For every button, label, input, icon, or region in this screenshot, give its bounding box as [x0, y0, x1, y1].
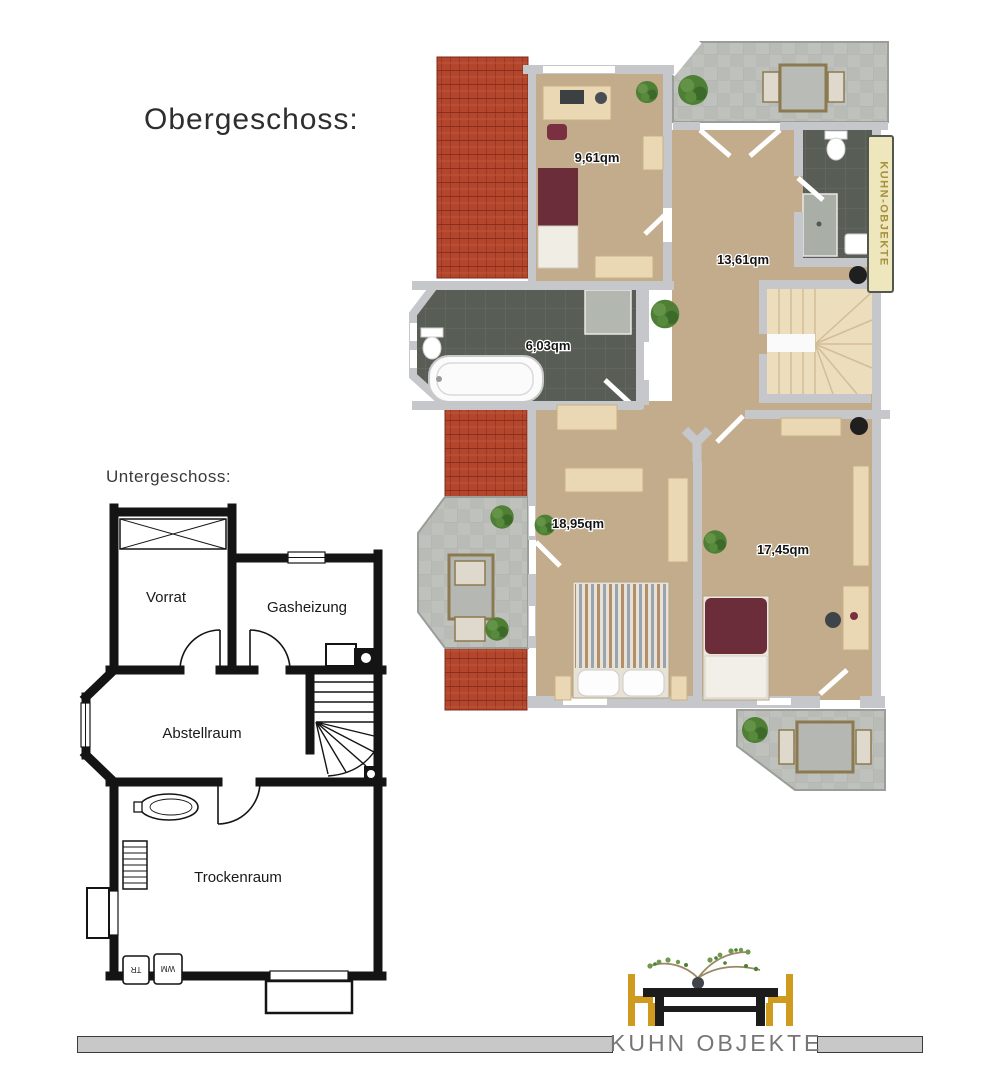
nightstand [555, 676, 571, 700]
basement-walls [86, 508, 382, 976]
column-post [849, 266, 867, 284]
plant-icon [651, 300, 680, 329]
wardrobe [643, 136, 663, 170]
wardrobe [781, 418, 841, 436]
plant-icon [485, 617, 508, 640]
obergeschoss-floorplan: 9,61qm 13,61qm 6,03qm 18,95qm 17,45qm KU… [405, 28, 905, 798]
page-title-obergeschoss: Obergeschoss: [144, 103, 359, 137]
watermark-badge: KUHN-OBJEKTE [868, 136, 893, 292]
room-label: Gasheizung [267, 599, 347, 616]
pillow [623, 670, 664, 696]
wardrobe [668, 478, 688, 562]
terrace-table [780, 65, 826, 111]
room-label: Trockenraum [194, 869, 282, 886]
staircase [767, 289, 872, 394]
room-label: Vorrat [146, 589, 187, 606]
wardrobe [565, 468, 643, 492]
room-area-label: 18,95qm [552, 516, 604, 531]
bath-mat [845, 234, 869, 254]
terrace-chair [779, 730, 794, 764]
light-well [266, 981, 352, 1013]
terrace-chair [828, 72, 844, 102]
logo-table [643, 988, 778, 1026]
balcony-chair [455, 617, 485, 641]
terrace-bottom [737, 710, 885, 790]
floorplan-flyer: Obergeschoss: Untergeschoss: [0, 0, 994, 1086]
terrace-chair [856, 730, 871, 764]
plant-icon [490, 505, 513, 528]
untergeschoss-floorplan: Vorrat Gasheizung Abstellraum Trockenrau… [70, 498, 405, 1033]
shelf [853, 466, 869, 566]
section-title-untergeschoss: Untergeschoss: [106, 467, 231, 487]
logo-chairs [628, 974, 793, 1026]
room-area-label: 17,45qm [757, 542, 809, 557]
stair-landing [767, 334, 815, 352]
room-area-label: 6,03qm [526, 338, 571, 353]
terrace-chair [763, 72, 779, 102]
chair [825, 612, 841, 628]
room-area-label: 9,61qm [575, 150, 620, 165]
wc-room [798, 130, 872, 258]
branch-decoration [647, 948, 760, 989]
footer-rule-right [817, 1036, 923, 1053]
column-post [850, 417, 868, 435]
monitor [560, 90, 584, 104]
plant-icon [742, 717, 768, 743]
shower [585, 290, 631, 334]
vase [692, 977, 704, 989]
kuhn-objekte-logo [598, 936, 833, 1032]
footer-rule-left [77, 1036, 613, 1053]
room-label: Abstellraum [162, 725, 241, 742]
balcony-left [418, 497, 528, 648]
basin [140, 794, 198, 820]
basement-staircase [314, 682, 374, 776]
nightstand [671, 676, 687, 700]
pillow [578, 670, 619, 696]
chair [547, 124, 567, 140]
watermark-text: KUHN-OBJEKTE [878, 161, 890, 266]
terrace-top [673, 42, 888, 122]
bed [538, 168, 578, 226]
plant-icon [678, 75, 708, 105]
terrace-table [797, 722, 853, 772]
light-well [87, 888, 109, 938]
appliance-label: WM [161, 964, 176, 973]
sideboard [557, 405, 617, 430]
table [595, 256, 653, 278]
plant-icon [703, 530, 726, 553]
balcony-chair [455, 561, 485, 585]
brand-wordmark: KUHN OBJEKTE [610, 1030, 818, 1057]
room-area-label: 13,61qm [717, 252, 769, 267]
toilet [421, 328, 443, 337]
appliance-label: TR [130, 965, 141, 974]
plant-icon [636, 81, 658, 103]
gas-furnace [326, 644, 356, 666]
